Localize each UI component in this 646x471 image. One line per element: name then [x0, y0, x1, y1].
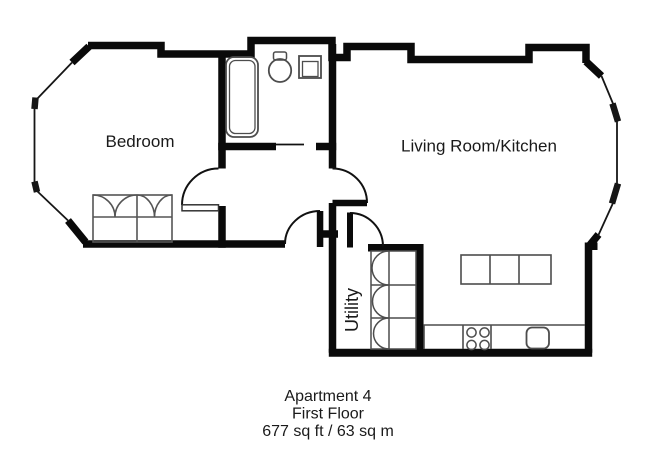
right-bay-top-cant	[586, 62, 602, 77]
living-kitchen-label: Living Room/Kitchen	[401, 137, 557, 156]
hob-burner	[467, 340, 476, 349]
entrance-door-swing-arc	[285, 211, 320, 244]
bathroom-fixtures	[226, 52, 321, 137]
utility-door-swing-arc	[350, 213, 383, 247]
bedroom-fixtures	[93, 195, 172, 242]
bathtub	[226, 57, 258, 137]
exterior-top-wall	[88, 41, 586, 64]
living-room-door-swing-arc	[333, 169, 368, 204]
bedroom-door-leaf	[182, 205, 219, 211]
bay-window-right	[598, 76, 618, 236]
utility-cupboard	[371, 251, 416, 349]
utility-door-leaf	[347, 213, 353, 248]
toilet	[269, 59, 291, 82]
bedroom-label: Bedroom	[106, 132, 175, 151]
utility-cupboard-door-arcs	[372, 251, 389, 349]
hob-burner	[480, 328, 489, 337]
kitchen-fixtures	[424, 255, 585, 350]
caption-area: 677 sq ft / 63 sq m	[262, 423, 394, 440]
left-bay-top-cant	[72, 47, 89, 63]
bedroom-door-swing-arc	[182, 169, 219, 206]
kitchen-island	[461, 255, 551, 284]
utility-label: Utility	[342, 288, 362, 332]
caption-floor: First Floor	[292, 406, 365, 423]
east-wall	[585, 235, 599, 353]
doors	[182, 145, 383, 248]
hob-burner	[467, 328, 476, 337]
bay-window-left	[35, 63, 73, 221]
wardrobe-door-arcs	[93, 195, 172, 217]
left-bay-glazing	[35, 63, 73, 221]
utility-fixtures	[371, 251, 416, 349]
bathtub-inner	[230, 61, 256, 134]
utility-cupboard-shelves	[371, 251, 416, 349]
basin-inner	[303, 62, 319, 77]
hob	[467, 328, 489, 350]
caption: Apartment 4 First Floor 677 sq ft / 63 s…	[262, 388, 394, 440]
entrance-door-leaf	[317, 211, 324, 247]
kitchen-counter	[424, 325, 585, 349]
hob-burner	[480, 340, 489, 349]
walls	[68, 41, 602, 353]
right-bay-glazing	[598, 76, 617, 236]
caption-apartment: Apartment 4	[284, 388, 371, 405]
floorplan: Bedroom Living Room/Kitchen Utility Apar…	[0, 0, 646, 471]
floorplan-canvas: Bedroom Living Room/Kitchen Utility Apar…	[0, 0, 646, 471]
kitchen-sink	[527, 328, 550, 349]
left-bay-bottom-cant	[68, 221, 86, 243]
kitchen-island-dividers	[490, 255, 519, 284]
